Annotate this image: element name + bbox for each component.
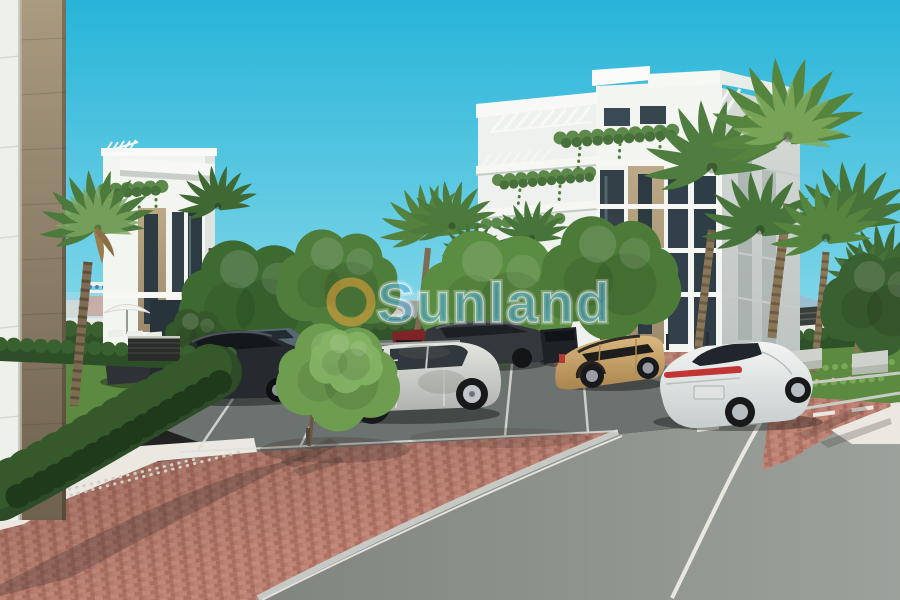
left-window-1 (172, 212, 184, 296)
pergola-planter-box (128, 336, 180, 361)
watermark-text: Sunland (377, 271, 612, 334)
bollard-1 (666, 334, 669, 350)
wall-white-panel (0, 0, 20, 520)
scene-rendering: Sunland Sunland (0, 0, 900, 600)
architectural-render-image: Sunland Sunland (0, 0, 900, 600)
bollard-2 (706, 332, 709, 348)
upper-window-1 (604, 108, 630, 126)
stone-pillar-highlight (20, 0, 22, 520)
parking-bollard (306, 428, 310, 444)
concrete-planter (852, 350, 888, 375)
wall-panel-edge (18, 0, 20, 520)
upper-window-2 (640, 106, 666, 124)
